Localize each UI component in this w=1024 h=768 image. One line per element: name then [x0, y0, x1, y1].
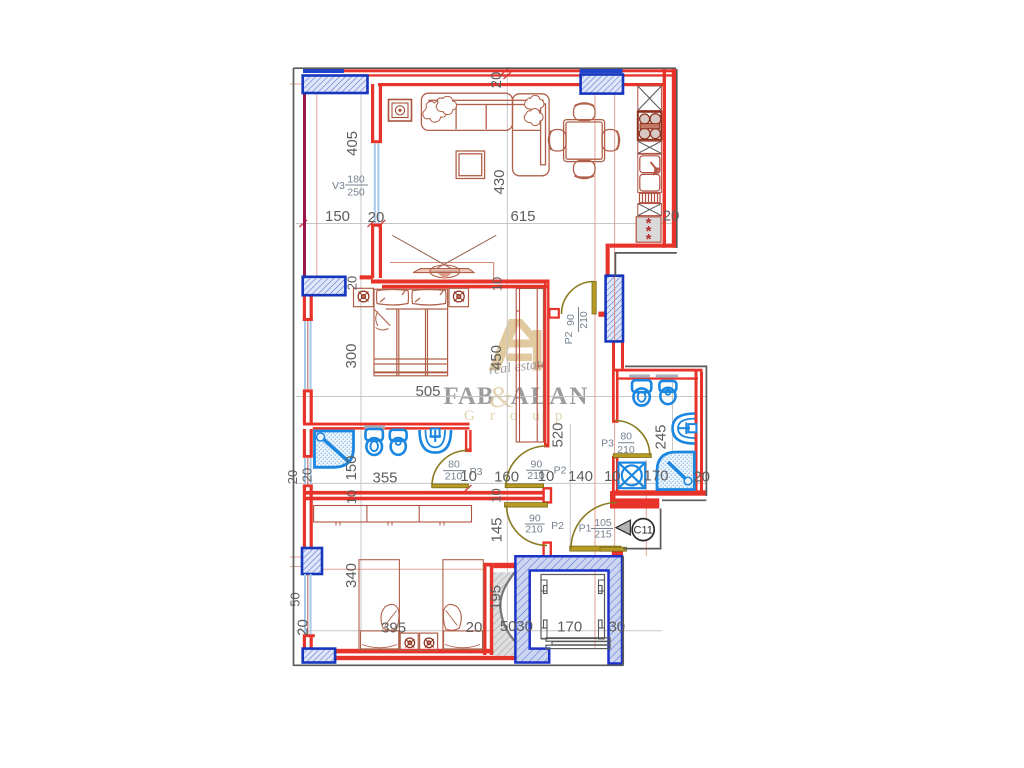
svg-text:180: 180 — [347, 174, 365, 186]
svg-text:300: 300 — [343, 343, 360, 368]
svg-text:20: 20 — [295, 619, 312, 636]
svg-text:150: 150 — [325, 208, 350, 225]
svg-text:250: 250 — [347, 187, 365, 199]
svg-text:20: 20 — [488, 72, 505, 89]
svg-text:405: 405 — [344, 131, 361, 156]
svg-text:145: 145 — [489, 517, 506, 542]
svg-text:170: 170 — [557, 619, 582, 636]
svg-text:20: 20 — [285, 470, 300, 484]
svg-text:160: 160 — [494, 469, 519, 486]
svg-text:20: 20 — [345, 276, 360, 290]
svg-text:20: 20 — [693, 469, 710, 486]
svg-text:430: 430 — [491, 169, 508, 194]
svg-text:50: 50 — [288, 592, 303, 606]
svg-text:C11: C11 — [634, 525, 653, 537]
svg-text:10: 10 — [490, 277, 505, 291]
svg-text:615: 615 — [510, 208, 535, 225]
svg-text:195: 195 — [488, 585, 505, 610]
svg-text:80: 80 — [448, 459, 460, 471]
svg-text:210: 210 — [525, 523, 543, 535]
svg-text:105: 105 — [594, 517, 612, 529]
svg-text:P3: P3 — [601, 437, 614, 449]
svg-text:P2: P2 — [554, 465, 567, 477]
svg-text:V3: V3 — [332, 180, 345, 192]
svg-text:10: 10 — [489, 488, 504, 502]
svg-text:P1: P1 — [579, 523, 592, 535]
svg-text:10: 10 — [538, 468, 555, 485]
svg-text:150: 150 — [343, 455, 360, 480]
svg-text:P2: P2 — [563, 331, 575, 344]
svg-text:20: 20 — [368, 209, 385, 226]
svg-text:90: 90 — [565, 314, 577, 326]
svg-text:10: 10 — [460, 468, 477, 485]
svg-text:340: 340 — [343, 563, 360, 588]
svg-text:140: 140 — [568, 468, 593, 485]
svg-text:245: 245 — [653, 424, 670, 449]
svg-text:30: 30 — [516, 618, 533, 635]
svg-text:450: 450 — [488, 345, 505, 370]
svg-text:210: 210 — [578, 311, 590, 329]
svg-text:10: 10 — [604, 468, 621, 485]
svg-text:210: 210 — [617, 444, 635, 456]
svg-text:20: 20 — [663, 208, 680, 225]
svg-text:215: 215 — [594, 528, 612, 540]
svg-text:*: * — [646, 231, 652, 248]
svg-text:50: 50 — [500, 618, 517, 635]
svg-text:505: 505 — [415, 383, 440, 400]
svg-text:P2: P2 — [551, 520, 564, 532]
svg-text:355: 355 — [372, 470, 397, 487]
svg-text:80: 80 — [620, 430, 632, 442]
svg-text:Group: Group — [464, 408, 577, 424]
svg-text:30: 30 — [608, 619, 625, 636]
svg-text:520: 520 — [550, 422, 567, 447]
svg-text:10: 10 — [344, 490, 359, 504]
svg-text:20: 20 — [466, 619, 483, 636]
svg-text:170: 170 — [643, 468, 668, 485]
svg-text:395: 395 — [381, 620, 406, 637]
svg-text:20: 20 — [300, 468, 315, 482]
